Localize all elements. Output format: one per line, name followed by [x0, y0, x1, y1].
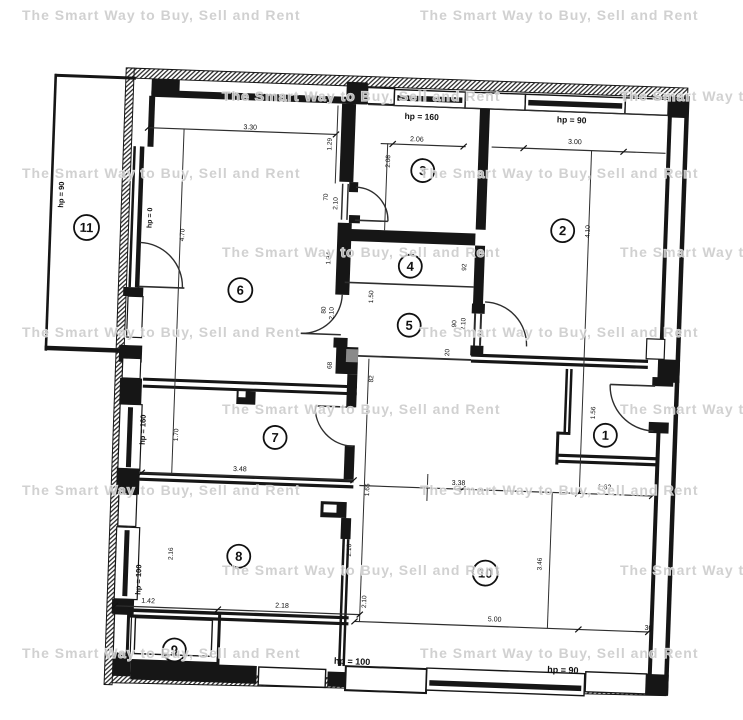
- svg-text:The Smart Way to Buy, Sell and: The Smart Way to Buy, Sell and Rent: [620, 244, 743, 260]
- svg-text:2.06: 2.06: [410, 136, 424, 143]
- svg-text:1.29: 1.29: [326, 137, 333, 150]
- svg-text:The Smart Way to Buy, Sell and: The Smart Way to Buy, Sell and Rent: [222, 562, 500, 578]
- svg-text:hp = 0: hp = 0: [147, 207, 155, 228]
- svg-text:The Smart Way to Buy, Sell and: The Smart Way to Buy, Sell and Rent: [420, 324, 698, 340]
- svg-text:hp = 90: hp = 90: [557, 114, 587, 125]
- svg-text:2.16: 2.16: [346, 543, 353, 556]
- svg-text:The Smart Way to Buy, Sell and: The Smart Way to Buy, Sell and Rent: [222, 244, 500, 260]
- svg-text:4: 4: [406, 259, 415, 274]
- svg-text:1.65: 1.65: [364, 483, 371, 496]
- svg-text:2.10: 2.10: [361, 595, 368, 608]
- svg-text:2.08: 2.08: [385, 155, 392, 168]
- svg-text:hp = 160: hp = 160: [404, 111, 439, 122]
- svg-text:The Smart Way to Buy, Sell and: The Smart Way to Buy, Sell and Rent: [420, 165, 698, 181]
- svg-text:4.10: 4.10: [584, 225, 591, 238]
- svg-text:6: 6: [236, 282, 244, 297]
- svg-text:The Smart Way to Buy, Sell and: The Smart Way to Buy, Sell and Rent: [222, 401, 500, 417]
- svg-text:2.10: 2.10: [332, 197, 339, 210]
- svg-text:The Smart Way to Buy, Sell and: The Smart Way to Buy, Sell and Rent: [420, 482, 698, 498]
- svg-text:1.70: 1.70: [173, 428, 180, 441]
- svg-text:5: 5: [405, 318, 413, 333]
- svg-text:hp = 90: hp = 90: [547, 664, 579, 675]
- svg-text:4.70: 4.70: [179, 228, 186, 241]
- svg-text:The Smart Way to Buy, Sell and: The Smart Way to Buy, Sell and Rent: [222, 88, 500, 104]
- svg-text:1.42: 1.42: [141, 598, 155, 605]
- svg-text:The Smart Way to Buy, Sell and: The Smart Way to Buy, Sell and Rent: [22, 7, 300, 23]
- svg-text:3.00: 3.00: [568, 139, 582, 146]
- svg-text:The Smart Way to Buy, Sell and: The Smart Way to Buy, Sell and Rent: [620, 88, 743, 104]
- svg-text:5.00: 5.00: [488, 616, 502, 623]
- svg-text:20: 20: [444, 348, 451, 356]
- svg-text:hp = 160: hp = 160: [138, 414, 148, 445]
- svg-text:The Smart Way to Buy, Sell and: The Smart Way to Buy, Sell and Rent: [22, 324, 300, 340]
- svg-text:92: 92: [461, 263, 468, 271]
- svg-text:3.46: 3.46: [536, 557, 543, 570]
- svg-text:11: 11: [79, 220, 93, 235]
- svg-text:The Smart Way to Buy, Sell and: The Smart Way to Buy, Sell and Rent: [22, 165, 300, 181]
- svg-text:82: 82: [368, 375, 375, 383]
- svg-text:68: 68: [327, 361, 334, 369]
- svg-text:hp = 100: hp = 100: [334, 656, 371, 667]
- svg-text:The Smart Way to Buy, Sell and: The Smart Way to Buy, Sell and Rent: [420, 7, 698, 23]
- svg-text:The Smart Way to Buy, Sell and: The Smart Way to Buy, Sell and Rent: [22, 482, 300, 498]
- svg-text:The Smart Way to Buy, Sell and: The Smart Way to Buy, Sell and Rent: [620, 401, 743, 417]
- svg-text:hp = 100: hp = 100: [133, 564, 143, 595]
- svg-text:hp = 90: hp = 90: [56, 181, 66, 207]
- svg-text:70: 70: [323, 193, 330, 201]
- svg-text:2.18: 2.18: [275, 603, 289, 610]
- svg-text:2.10: 2.10: [328, 307, 335, 320]
- svg-text:30: 30: [644, 625, 652, 632]
- svg-text:3.30: 3.30: [243, 124, 257, 131]
- svg-text:2.16: 2.16: [168, 547, 175, 560]
- svg-text:The Smart Way to Buy, Sell and: The Smart Way to Buy, Sell and Rent: [22, 645, 300, 661]
- svg-text:1: 1: [601, 428, 609, 443]
- svg-text:1.50: 1.50: [368, 290, 375, 303]
- svg-text:80: 80: [321, 306, 328, 314]
- svg-text:7: 7: [271, 430, 279, 445]
- svg-text:The Smart Way to Buy, Sell and: The Smart Way to Buy, Sell and Rent: [420, 645, 698, 661]
- svg-text:3.48: 3.48: [233, 466, 247, 473]
- svg-text:The Smart Way to Buy, Sell and: The Smart Way to Buy, Sell and Rent: [620, 562, 743, 578]
- svg-text:2: 2: [559, 223, 567, 238]
- svg-text:1.56: 1.56: [590, 406, 597, 419]
